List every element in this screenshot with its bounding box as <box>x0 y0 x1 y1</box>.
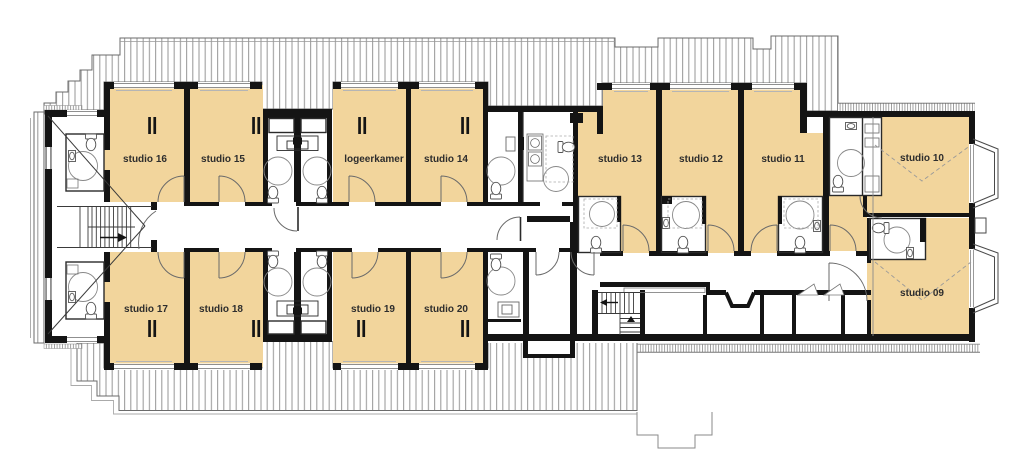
svg-text:studio 20: studio 20 <box>424 304 468 315</box>
svg-text:studio 17: studio 17 <box>124 304 168 315</box>
svg-text:studio 19: studio 19 <box>351 304 395 315</box>
svg-text:studio 09: studio 09 <box>900 288 944 299</box>
svg-text:studio 16: studio 16 <box>123 154 167 165</box>
svg-text:studio 18: studio 18 <box>199 304 243 315</box>
svg-text:studio 11: studio 11 <box>761 154 805 165</box>
svg-text:studio 15: studio 15 <box>201 154 245 165</box>
svg-text:studio 12: studio 12 <box>679 154 723 165</box>
svg-text:logeerkamer: logeerkamer <box>344 154 404 165</box>
svg-text:studio 10: studio 10 <box>900 153 944 164</box>
svg-text:studio 13: studio 13 <box>598 154 642 165</box>
svg-text:studio 14: studio 14 <box>424 154 468 165</box>
